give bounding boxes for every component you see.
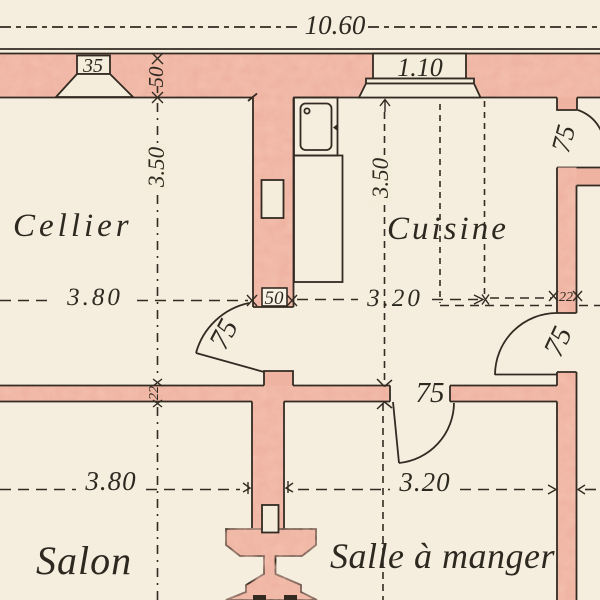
- svg-text:Salon: Salon: [36, 538, 132, 583]
- svg-text:22: 22: [147, 386, 162, 400]
- svg-text:Cellier: Cellier: [13, 208, 133, 244]
- svg-text:3.80: 3.80: [84, 466, 136, 496]
- svg-text:1.10: 1.10: [397, 53, 443, 82]
- svg-text:3.20: 3.20: [366, 285, 423, 312]
- svg-text:35: 35: [82, 55, 103, 77]
- svg-text:3.50: 3.50: [144, 146, 169, 188]
- svg-text:10.60: 10.60: [305, 10, 366, 40]
- svg-text:50: 50: [144, 66, 168, 88]
- svg-text:50: 50: [265, 288, 285, 309]
- svg-text:75: 75: [416, 377, 445, 409]
- svg-text:Salle à manger: Salle à manger: [330, 536, 555, 576]
- svg-text:22: 22: [559, 290, 573, 305]
- svg-text:3.50: 3.50: [368, 157, 393, 199]
- svg-text:3.20: 3.20: [398, 467, 450, 497]
- svg-text:3.80: 3.80: [66, 284, 123, 311]
- svg-text:Cuisine: Cuisine: [387, 211, 509, 247]
